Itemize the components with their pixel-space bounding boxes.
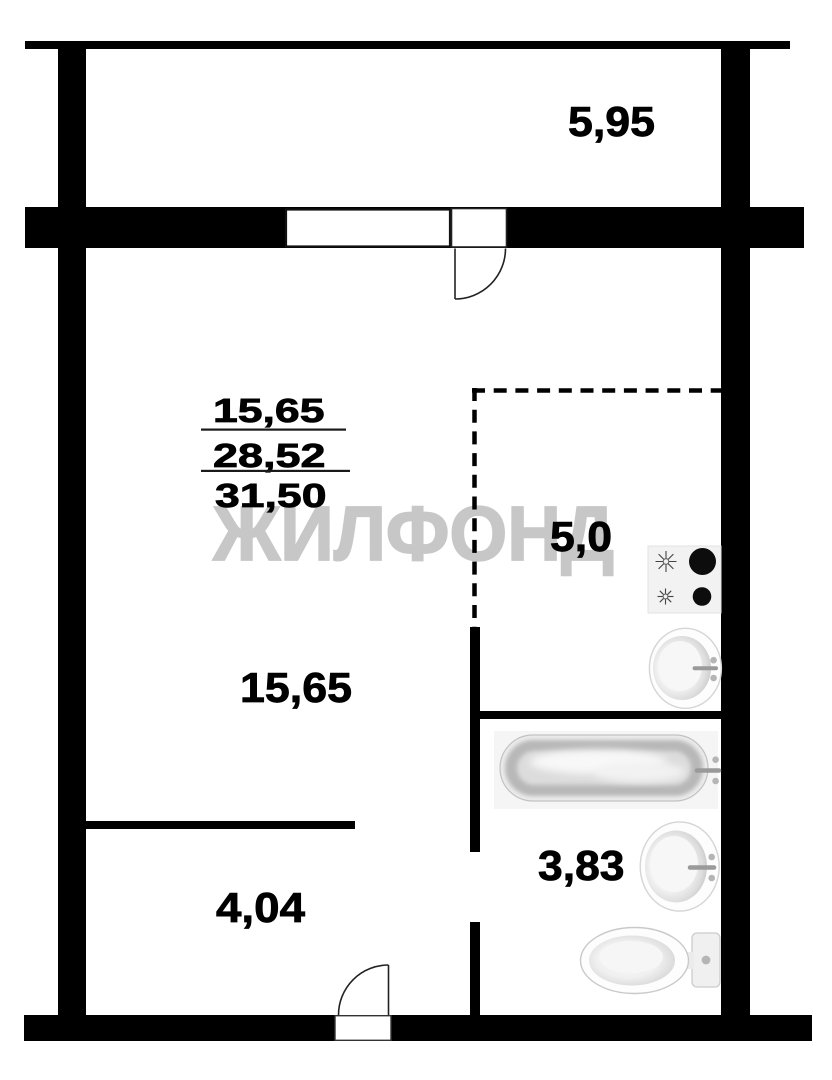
svg-text:3,83: 3,83 — [538, 842, 625, 889]
svg-text:31,50: 31,50 — [215, 478, 327, 515]
svg-text:15,65: 15,65 — [213, 393, 325, 430]
svg-text:5,0: 5,0 — [550, 513, 612, 560]
svg-text:15,65: 15,65 — [240, 664, 352, 711]
svg-text:4,04: 4,04 — [216, 884, 306, 931]
svg-text:5,95: 5,95 — [568, 98, 655, 145]
svg-text:28,52: 28,52 — [213, 438, 326, 475]
